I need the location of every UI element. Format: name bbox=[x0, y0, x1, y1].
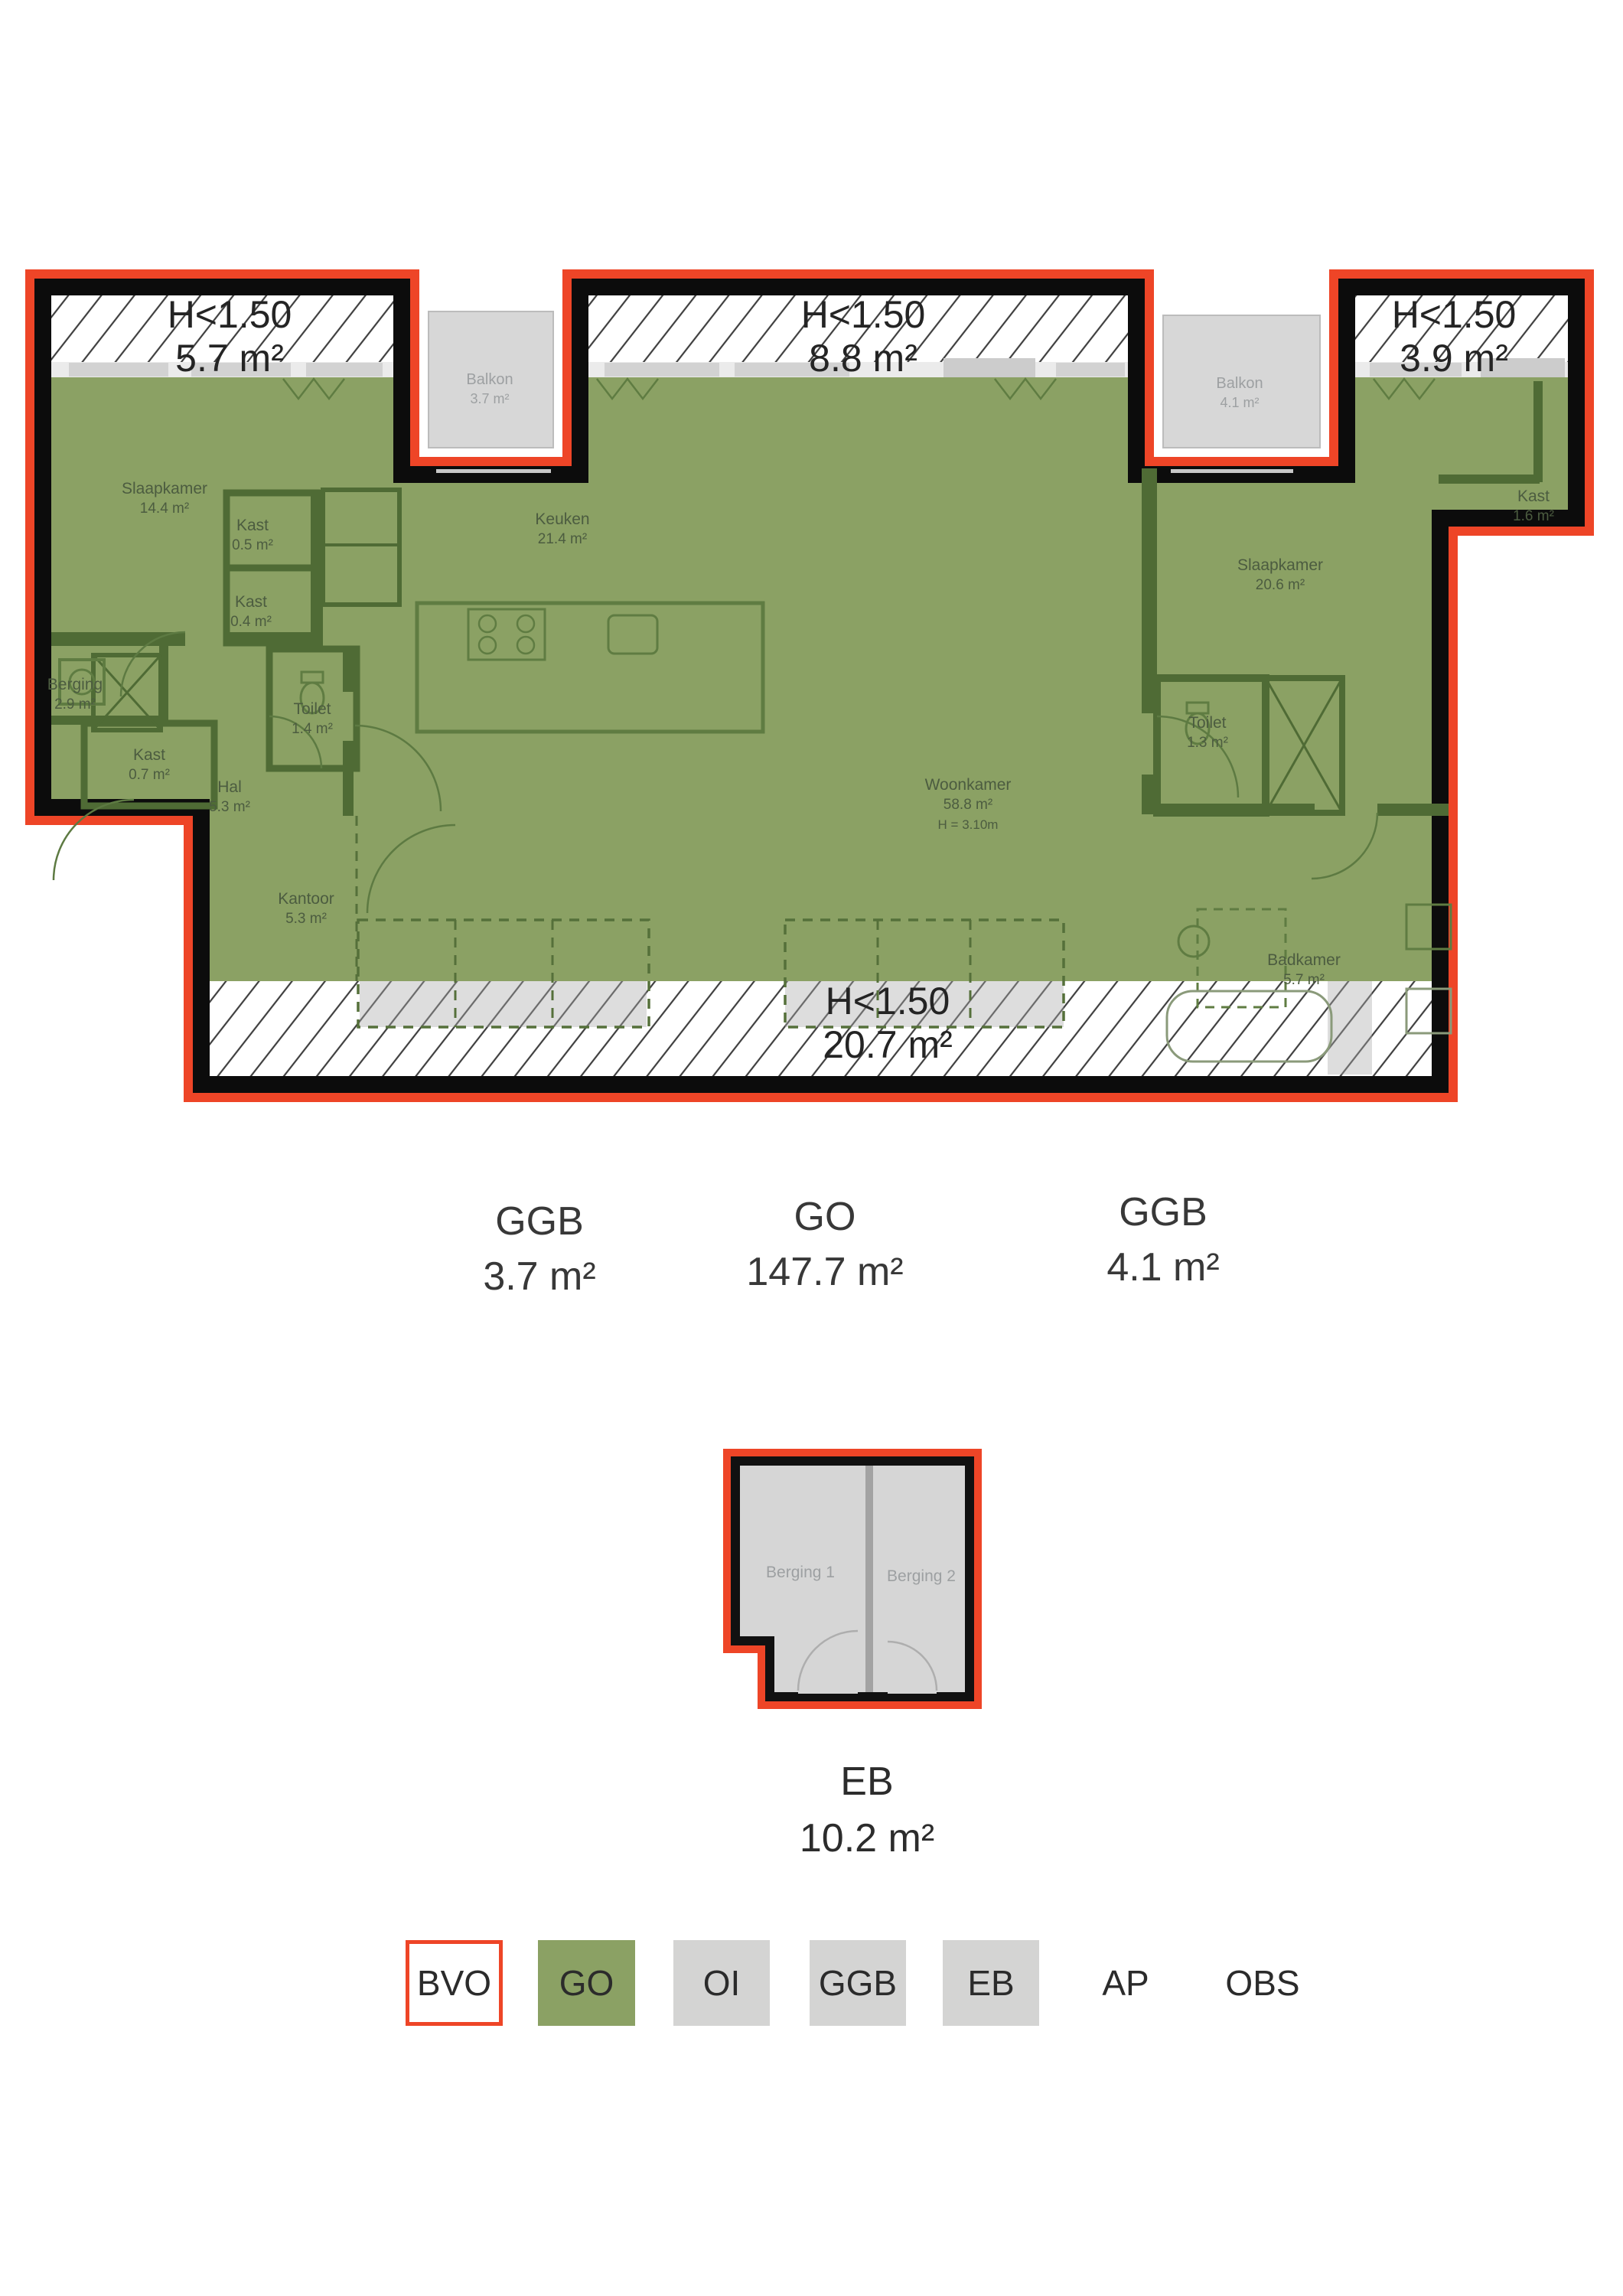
room-label-kast-07: Kast0.7 m² bbox=[129, 745, 170, 785]
room-label-badkamer: Badkamer5.7 m² bbox=[1267, 951, 1341, 990]
room-label-kantoor: Kantoor5.3 m² bbox=[278, 889, 334, 929]
room-label-woonkamer: Woonkamer58.8 m² H = 3.10m bbox=[925, 775, 1012, 835]
room-label-toilet-2: Toilet1.3 m² bbox=[1187, 713, 1228, 753]
balcony-2-label: Balkon 4.1 m² bbox=[1216, 374, 1263, 413]
floorplan-page: H<1.50 5.7 m² H<1.50 8.8 m² H<1.50 3.9 m… bbox=[0, 0, 1623, 2296]
room-label-kast-16: Kast1.6 m² bbox=[1513, 487, 1554, 527]
room-label-kast-05: Kast0.5 m² bbox=[232, 516, 273, 556]
summary-eb: EB10.2 m² bbox=[800, 1753, 934, 1867]
legend-item-obs: OBS bbox=[1212, 1940, 1313, 2026]
storage-room-1-label: Berging 1 bbox=[766, 1564, 835, 1582]
room-label-hal: Hal5.3 m² bbox=[209, 778, 250, 817]
legend-item-ap: AP bbox=[1077, 1940, 1174, 2026]
room-label-keuken: Keuken21.4 m² bbox=[535, 510, 589, 550]
summary-ggb-right: GGB4.1 m² bbox=[1106, 1185, 1219, 1295]
room-label-slaapkamer-1: Slaapkamer14.4 m² bbox=[122, 479, 207, 519]
balcony-1-label: Balkon 3.7 m² bbox=[466, 370, 513, 409]
legend-item-ggb: GGB bbox=[810, 1940, 906, 2026]
room-label-slaapkamer-2: Slaapkamer20.6 m² bbox=[1237, 556, 1323, 595]
low-height-zone-bottom: H<1.50 20.7 m² bbox=[823, 980, 953, 1067]
room-label-toilet-1: Toilet1.4 m² bbox=[292, 700, 333, 739]
storage-room-2-label: Berging 2 bbox=[887, 1567, 956, 1586]
room-label-berging: Berging2.9 m² bbox=[47, 675, 103, 715]
low-height-zone-middle: H<1.50 8.8 m² bbox=[801, 293, 926, 380]
summary-ggb-left: GGB3.7 m² bbox=[483, 1194, 595, 1304]
summary-go: GO147.7 m² bbox=[746, 1189, 903, 1300]
room-label-kast-04: Kast0.4 m² bbox=[230, 592, 272, 632]
legend-item-bvo: BVO bbox=[406, 1940, 503, 2026]
legend-item-oi: OI bbox=[673, 1940, 770, 2026]
legend-item-eb: EB bbox=[943, 1940, 1039, 2026]
low-height-zone-right: H<1.50 3.9 m² bbox=[1392, 293, 1517, 380]
low-height-zone-left: H<1.50 5.7 m² bbox=[168, 293, 292, 380]
legend-item-go: GO bbox=[538, 1940, 635, 2026]
